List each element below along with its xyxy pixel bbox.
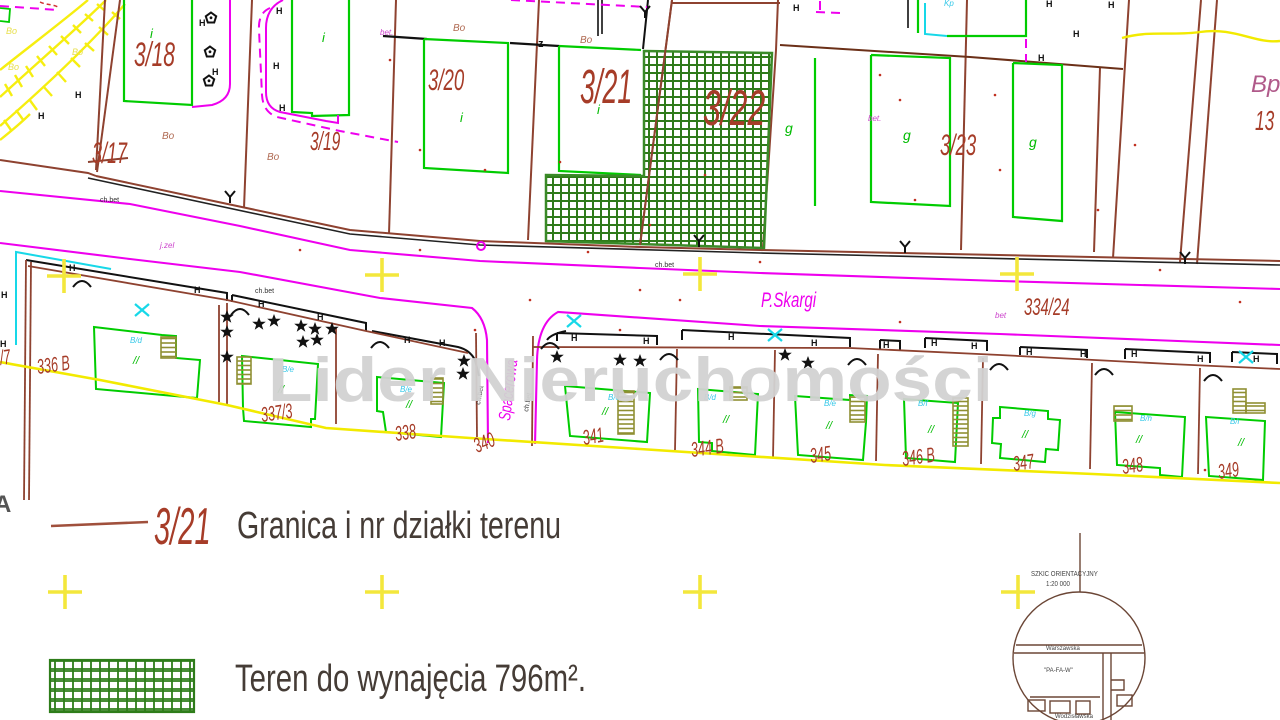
svg-text:3/21: 3/21 — [154, 497, 211, 555]
svg-text:H: H — [38, 111, 45, 121]
svg-text:H: H — [1080, 349, 1087, 359]
svg-text://: // — [722, 414, 730, 426]
svg-text:H: H — [1131, 349, 1138, 359]
svg-text:3/19: 3/19 — [310, 127, 340, 156]
svg-text:SZKIC ORIENTACYJNY: SZKIC ORIENTACYJNY — [1031, 571, 1098, 578]
svg-text:Bo: Bo — [580, 35, 593, 46]
svg-text:bet: bet — [995, 311, 1007, 320]
svg-text:3/20: 3/20 — [428, 64, 464, 98]
svg-text:H: H — [1197, 354, 1204, 364]
svg-text:bet.: bet. — [868, 114, 881, 123]
svg-text:"PA-FA-W": "PA-FA-W" — [1044, 668, 1073, 674]
svg-text:338: 338 — [393, 419, 417, 446]
svg-text:Warszawska: Warszawska — [1046, 646, 1080, 652]
svg-text:H: H — [1038, 53, 1045, 63]
svg-text:Lider Nieruchomości: Lider Nieruchomości — [268, 346, 993, 415]
svg-text:H: H — [194, 285, 201, 295]
svg-text:Bp: Bp — [1251, 71, 1280, 98]
svg-text:H: H — [571, 333, 578, 343]
svg-text:H: H — [793, 3, 800, 13]
svg-text:g: g — [903, 127, 911, 143]
svg-text:Bo: Bo — [162, 131, 175, 142]
svg-text:bet.: bet. — [380, 28, 393, 37]
svg-text:H: H — [212, 67, 219, 77]
svg-text:3/22: 3/22 — [703, 80, 765, 136]
svg-text://: // — [1237, 437, 1245, 449]
svg-text:3/21: 3/21 — [580, 61, 632, 114]
svg-text:345: 345 — [808, 441, 832, 468]
svg-text:H: H — [75, 90, 82, 100]
svg-text:H: H — [279, 103, 286, 113]
svg-text:Bo: Bo — [267, 152, 280, 163]
svg-text:H: H — [1073, 29, 1080, 39]
svg-text://: // — [1021, 429, 1029, 441]
svg-text:z: z — [538, 38, 544, 50]
svg-text:ch.bet: ch.bet — [100, 197, 119, 204]
svg-text:j.zel: j.zel — [159, 241, 174, 250]
svg-text:336 B: 336 B — [35, 350, 71, 379]
svg-text:ch.bet: ch.bet — [255, 288, 274, 295]
svg-text:Bo: Bo — [8, 62, 19, 72]
svg-text:B/h: B/h — [1140, 414, 1153, 423]
svg-text:3/18: 3/18 — [134, 35, 175, 73]
svg-text:B/g: B/g — [1024, 409, 1037, 418]
svg-text:Bo: Bo — [453, 23, 466, 34]
svg-text://: // — [825, 420, 833, 432]
svg-text:H: H — [258, 299, 265, 309]
svg-text:H: H — [199, 18, 206, 28]
svg-text:348: 348 — [1120, 452, 1144, 479]
svg-text:g: g — [785, 120, 793, 136]
svg-text:H: H — [317, 312, 324, 322]
svg-text:H: H — [1108, 0, 1115, 10]
svg-text:13: 13 — [1255, 105, 1274, 136]
svg-text:H: H — [1026, 347, 1033, 357]
svg-text:H: H — [273, 61, 280, 71]
svg-text:A: A — [0, 491, 11, 518]
svg-text://: // — [132, 355, 140, 367]
svg-text:Wodzisławska: Wodzisławska — [1055, 714, 1094, 720]
svg-text:H: H — [0, 339, 7, 349]
svg-text:B/d: B/d — [130, 336, 143, 345]
svg-text:g: g — [1029, 134, 1037, 150]
svg-text:Teren do wynajęcia 796m².: Teren do wynajęcia 796m². — [235, 658, 586, 700]
svg-text:H: H — [276, 6, 283, 16]
svg-text:1:20 000: 1:20 000 — [1046, 581, 1070, 588]
svg-text:341: 341 — [581, 422, 606, 450]
svg-text:P.Skargi: P.Skargi — [761, 287, 817, 311]
svg-text:349: 349 — [1216, 457, 1240, 484]
svg-text:H: H — [728, 332, 735, 342]
svg-text:H: H — [1, 290, 8, 300]
svg-text:Bo: Bo — [6, 26, 17, 36]
svg-text:H: H — [404, 335, 411, 345]
svg-text:Kp: Kp — [944, 0, 954, 8]
svg-text:344 B: 344 B — [689, 433, 725, 462]
svg-text:3/23: 3/23 — [940, 129, 976, 163]
svg-text:3/17: 3/17 — [92, 138, 128, 171]
svg-text://: // — [1135, 434, 1143, 446]
svg-text:346 B: 346 B — [900, 442, 936, 471]
svg-text:Granica i nr działki terenu: Granica i nr działki terenu — [237, 505, 561, 547]
svg-text:H: H — [1046, 0, 1053, 9]
svg-text:334/24: 334/24 — [1024, 295, 1069, 321]
svg-text://: // — [927, 424, 935, 436]
svg-text:H: H — [69, 263, 76, 273]
svg-text:B/i: B/i — [1230, 417, 1240, 426]
svg-text:ch.bet: ch.bet — [655, 262, 674, 269]
svg-text:Bo: Bo — [72, 47, 83, 57]
svg-text:H: H — [643, 336, 650, 346]
svg-text:H: H — [1253, 354, 1260, 364]
